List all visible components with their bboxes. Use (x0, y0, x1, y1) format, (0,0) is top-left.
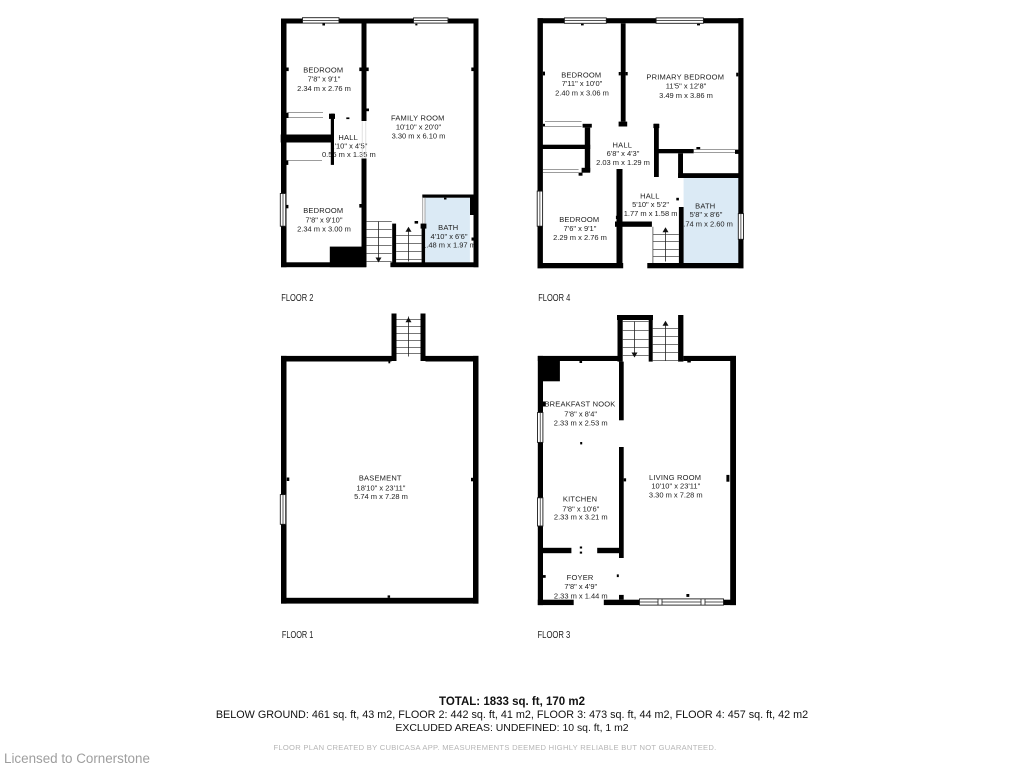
svg-text:6'8" x 4'3": 6'8" x 4'3" (607, 149, 640, 158)
svg-text:2.29 m x 2.76 m: 2.29 m x 2.76 m (553, 233, 607, 242)
svg-text:FAMILY ROOM: FAMILY ROOM (391, 114, 445, 123)
svg-text:5.74 m x 7.28 m: 5.74 m x 7.28 m (354, 492, 408, 501)
svg-text:BEDROOM: BEDROOM (303, 66, 343, 75)
svg-text:BELOW GROUND: 461 sq. ft, 43 m: BELOW GROUND: 461 sq. ft, 43 m2, FLOOR 2… (216, 709, 808, 721)
svg-text:7'11" x 10'0": 7'11" x 10'0" (562, 79, 603, 88)
svg-text:1.77 m x 1.58 m: 1.77 m x 1.58 m (624, 209, 678, 218)
svg-text:2.40 m x 3.06 m: 2.40 m x 3.06 m (555, 88, 609, 97)
svg-text:2.33 m x 2.53 m: 2.33 m x 2.53 m (554, 418, 608, 427)
svg-text:3.30 m x 6.10 m: 3.30 m x 6.10 m (392, 132, 446, 141)
svg-text:2.03 m x 1.29 m: 2.03 m x 1.29 m (596, 158, 650, 167)
svg-text:3.49 m x 3.86 m: 3.49 m x 3.86 m (659, 91, 713, 100)
svg-text:BEDROOM: BEDROOM (559, 215, 599, 224)
svg-text:0.56 m x 1.35 m: 0.56 m x 1.35 m (322, 150, 376, 159)
svg-text:5'8" x 8'6": 5'8" x 8'6" (690, 210, 723, 219)
svg-text:FLOOR PLAN CREATED BY CUBICASA: FLOOR PLAN CREATED BY CUBICASA APP. MEAS… (273, 743, 716, 752)
svg-text:7'8" x 4'9": 7'8" x 4'9" (564, 582, 597, 591)
svg-text:BEDROOM: BEDROOM (303, 206, 343, 215)
svg-text:EXCLUDED AREAS: UNDEFINED: 10: EXCLUDED AREAS: UNDEFINED: 10 sq. ft, 1 … (395, 723, 628, 734)
svg-text:BATH: BATH (438, 223, 458, 232)
svg-text:7'6" x 9'1": 7'6" x 9'1" (564, 224, 597, 233)
svg-text:FLOOR 4: FLOOR 4 (538, 293, 570, 304)
svg-text:2.34 m x 3.00 m: 2.34 m x 3.00 m (297, 225, 351, 234)
svg-text:FLOOR 1: FLOOR 1 (282, 630, 314, 641)
svg-text:3.30 m x 7.28 m: 3.30 m x 7.28 m (649, 491, 703, 500)
svg-text:TOTAL: 1833 sq. ft, 170 m2: TOTAL: 1833 sq. ft, 170 m2 (439, 696, 585, 708)
svg-text:FLOOR 2: FLOOR 2 (281, 293, 313, 304)
svg-text:7'8" x 9'1": 7'8" x 9'1" (308, 75, 341, 84)
svg-text:5'10" x 5'2": 5'10" x 5'2" (632, 200, 669, 209)
svg-text:1.74 m x 2.60 m: 1.74 m x 2.60 m (679, 219, 733, 228)
svg-text:11'5" x 12'8": 11'5" x 12'8" (666, 82, 707, 91)
svg-text:10'10" x 20'0": 10'10" x 20'0" (396, 123, 442, 132)
svg-text:2.33 m x 1.44 m: 2.33 m x 1.44 m (554, 591, 608, 600)
svg-text:18'10" x 23'11": 18'10" x 23'11" (357, 483, 406, 492)
svg-text:PRIMARY BEDROOM: PRIMARY BEDROOM (646, 72, 724, 81)
svg-text:LIVING ROOM: LIVING ROOM (649, 473, 701, 482)
svg-text:2.33 m x 3.21 m: 2.33 m x 3.21 m (554, 512, 608, 521)
svg-text:FOYER: FOYER (567, 573, 594, 582)
svg-text:BREAKFAST NOOK: BREAKFAST NOOK (544, 399, 615, 408)
svg-text:2.34 m x 2.76 m: 2.34 m x 2.76 m (297, 84, 351, 93)
svg-text:KITCHEN: KITCHEN (563, 494, 597, 503)
svg-text:1.48 m x 1.97 m: 1.48 m x 1.97 m (422, 241, 476, 250)
svg-text:7'8" x 9'10": 7'8" x 9'10" (306, 215, 343, 224)
svg-text:7'8" x 8'4": 7'8" x 8'4" (564, 409, 597, 418)
svg-text:10'10" x 23'11": 10'10" x 23'11" (651, 482, 700, 491)
svg-text:FLOOR 3: FLOOR 3 (538, 630, 571, 641)
svg-text:Licensed to Cornerstone: Licensed to Cornerstone (4, 751, 150, 766)
svg-text:BASEMENT: BASEMENT (359, 474, 402, 483)
